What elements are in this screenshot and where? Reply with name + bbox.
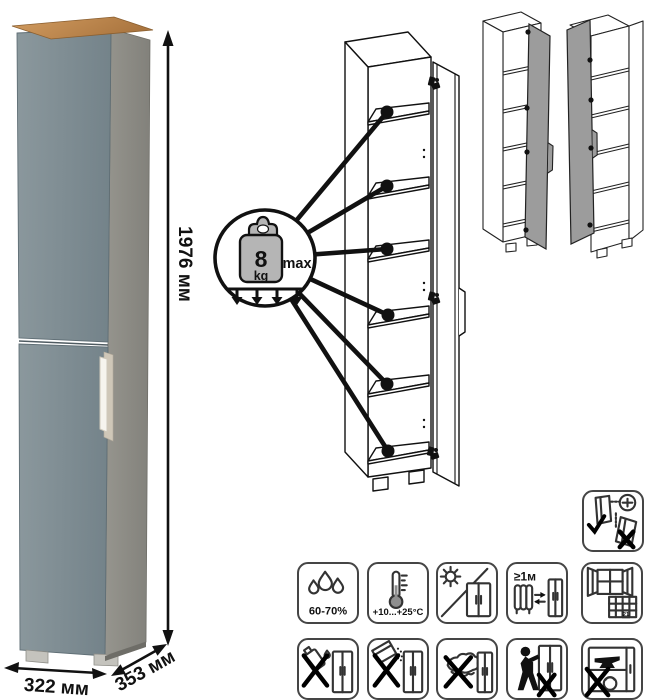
load-qualifier: max xyxy=(282,256,311,272)
variant-door-gray xyxy=(567,20,594,244)
calendar-icon: 21 xyxy=(609,597,636,618)
shelf-load-badge: 8 kg max xyxy=(215,210,315,306)
width-dimension-label: 322 мм xyxy=(23,675,89,700)
secure-to-wall-pictogram xyxy=(584,492,642,550)
radiator-icon xyxy=(515,585,532,609)
icon-no-aggressive-liquids xyxy=(297,638,359,700)
cabinet-foot xyxy=(26,650,48,663)
variant-right-hinged xyxy=(483,12,553,252)
sun-icon xyxy=(446,572,456,582)
icon-no-heavy-objects xyxy=(581,638,643,700)
diagram-open-door xyxy=(433,62,465,486)
width-dimension: 322 мм xyxy=(4,662,107,700)
height-dimension: 1976 мм xyxy=(163,30,196,646)
wardrobe-icon xyxy=(404,652,422,693)
calendar-day-label: 21 xyxy=(623,612,630,618)
icon-avoid-direct-sunlight xyxy=(436,562,498,624)
door-handle-notch xyxy=(459,288,465,336)
diagram-foot xyxy=(373,477,388,491)
humidity-label: 60-70% xyxy=(309,605,347,617)
open-window-icon xyxy=(588,568,632,596)
variant-left-hinged xyxy=(567,15,643,258)
variant-door-gray xyxy=(525,24,550,249)
icon-secure-to-wall xyxy=(582,490,644,552)
load-unit: kg xyxy=(254,269,269,283)
wardrobe-icon xyxy=(467,583,490,616)
icon-no-wet-cloth xyxy=(436,638,498,700)
diagram-foot xyxy=(409,470,424,484)
wardrobe-icon xyxy=(478,653,493,693)
wardrobe-icon xyxy=(549,579,563,616)
cabinet-lower-door xyxy=(19,344,108,656)
temperature-label: +10...+25°С xyxy=(373,607,424,618)
furniture-product-sheet: 1976 мм 322 мм 353 мм xyxy=(0,0,648,700)
icon-ventilate-acclimatize: 21 xyxy=(581,562,643,624)
cabinet-upper-door xyxy=(17,29,111,342)
icon-do-not-drag xyxy=(506,638,568,700)
person-icon xyxy=(518,647,540,691)
height-dimension-label: 1976 мм xyxy=(174,226,195,302)
cabinet-side-panel xyxy=(105,29,150,656)
water-drop-icon xyxy=(309,580,318,593)
cabinet-product-render xyxy=(12,17,153,666)
variant-handle-notch xyxy=(548,143,553,173)
icon-humidity-range: 60-70% xyxy=(297,562,359,624)
variant-handle-notch xyxy=(592,130,597,158)
cabinet-handle xyxy=(100,357,107,432)
double-arrow-icon xyxy=(534,592,546,605)
icon-keep-distance-from-heat: ≥1м xyxy=(506,562,568,624)
icon-temperature-range: +10...+25°С xyxy=(367,562,429,624)
icon-no-abrasive-cleaners xyxy=(367,638,429,700)
heat-distance-label: ≥1м xyxy=(514,569,536,583)
wardrobe-icon xyxy=(333,652,352,693)
